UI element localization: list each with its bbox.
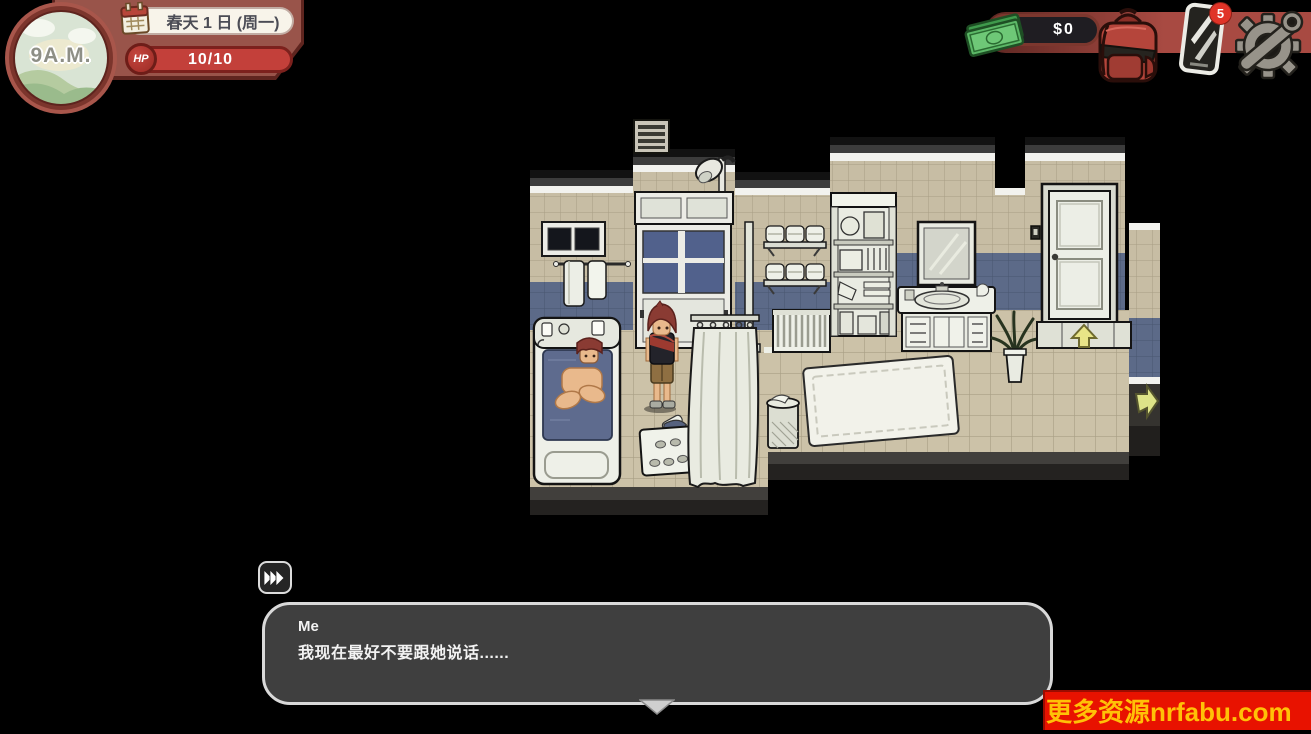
bathtub[interactable] [534, 318, 620, 484]
exit-up-indicator[interactable] [1037, 322, 1131, 348]
fast-forward-button[interactable] [258, 561, 292, 594]
radiator [764, 310, 830, 353]
dialogue-text: 我现在最好不要跟她说话...... [298, 639, 1020, 663]
watermark-text: 更多资源nrfabu.com [1046, 692, 1292, 729]
speaker-name: Me [298, 618, 1020, 635]
calendar-icon [118, 1, 152, 37]
gear-icon[interactable] [1235, 6, 1305, 80]
backpack-icon[interactable] [1086, 5, 1170, 90]
hp-label: HP [133, 53, 148, 65]
air-vent-icon [634, 120, 669, 153]
bathroom-door[interactable] [1042, 184, 1117, 324]
money-value: $0 [1053, 21, 1075, 39]
sink-vanity[interactable] [898, 282, 995, 351]
dialogue-box[interactable]: Me 我现在最好不要跟她说话...... [262, 602, 1053, 705]
notification-count: 5 [1217, 6, 1224, 21]
notification-badge: 5 [1209, 2, 1232, 25]
hp-icon: HP [125, 43, 157, 75]
storage-shelf[interactable] [831, 193, 896, 336]
game-screen: 9A.M. 春天 1 日 (周一) 10/10 HP $0 [0, 0, 1311, 734]
watermark-banner: 更多资源nrfabu.com [1043, 690, 1311, 730]
mirror [918, 222, 975, 285]
hp-value: 10/10 [188, 51, 233, 69]
fast-forward-icon [264, 570, 286, 586]
bathroom-window[interactable] [542, 222, 605, 256]
date-label: 春天 1 日 (周一) [167, 9, 280, 33]
bath-rug [803, 356, 959, 447]
continue-arrow-icon[interactable] [639, 699, 675, 715]
shower-curtain[interactable] [688, 315, 759, 487]
time-label: 9A.M. [2, 44, 120, 68]
light-switch[interactable] [1031, 226, 1040, 239]
waste-hamper[interactable] [767, 395, 799, 448]
cash-icon [960, 12, 1030, 60]
game-viewport[interactable] [528, 100, 1162, 520]
